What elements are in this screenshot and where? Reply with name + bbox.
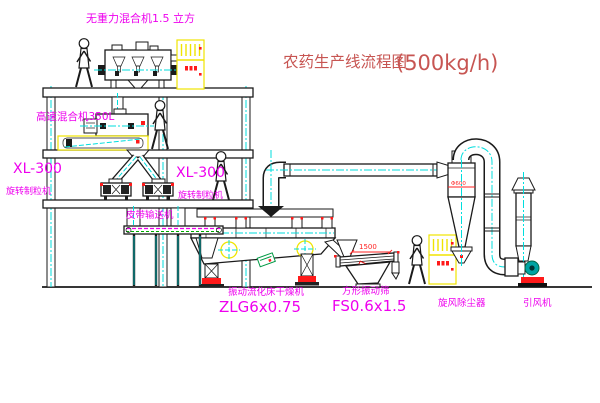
drawing-title: 农药生产线流程图 (500kg/h) (283, 51, 498, 75)
control-cabinet-top (177, 40, 204, 89)
dimension-1500-text: 1500 (359, 243, 377, 251)
person-figure-top-floor (76, 39, 92, 87)
cad-canvas: 1500 Φ600 (0, 0, 600, 403)
label-gravityless-mixer: 无重力混合机1.5 立方 (86, 11, 195, 25)
granulator-right (142, 183, 174, 200)
control-cabinet-cyclone (429, 235, 456, 284)
label-screen-name: 方形振动筛 (342, 285, 390, 297)
dimension-1500: 1500 (350, 243, 392, 254)
title-text: 农药生产线流程图 (283, 53, 407, 71)
vibrating-screen: 1500 (334, 240, 400, 287)
label-fan: 引风机 (523, 297, 552, 309)
label-granulator-left-name: 旋转制粒机 (6, 185, 51, 197)
floor-slab-lower (43, 200, 253, 208)
gravityless-mixer (94, 42, 184, 88)
cyclone-dust-collector: Φ600 (448, 146, 475, 267)
label-granulator-left-model: XL-300 (13, 161, 62, 177)
label-dryer-model: ZLG6x0.75 (219, 298, 301, 316)
label-belt-conveyor: 皮带输送机 (126, 209, 174, 221)
label-granulator-right-name: 旋转制粒机 (178, 189, 223, 201)
process-flow-drawing: 1500 Φ600 (0, 0, 600, 403)
fluid-bed-dryer (191, 209, 352, 288)
label-screen-model: FS0.6x1.5 (332, 297, 406, 315)
label-cyclone: 旋风除尘器 (438, 297, 486, 309)
cyclone-dimension-text: Φ600 (451, 181, 466, 187)
label-high-speed-mixer: 高速混合机350L (36, 110, 115, 123)
granulator-left (100, 183, 132, 200)
label-dryer-name: 振动流化床干燥机 (228, 286, 305, 298)
person-figure-screen (409, 236, 425, 284)
title-capacity: (500kg/h) (396, 51, 498, 75)
induced-draft-fan (505, 258, 547, 287)
floor-slab-top (43, 88, 253, 97)
exhaust-duct (258, 150, 450, 217)
label-granulator-right-model: XL-300 (176, 165, 225, 181)
